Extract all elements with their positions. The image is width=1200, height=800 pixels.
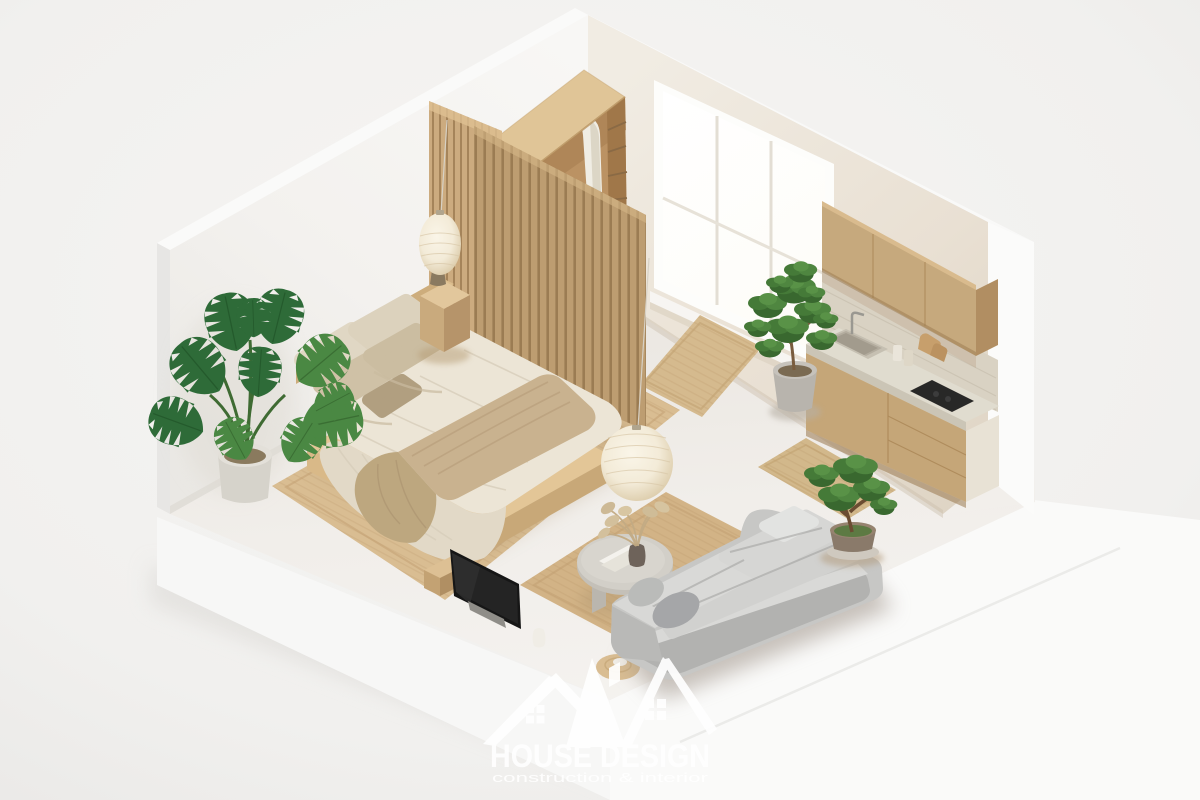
svg-text:HOUSE DESIGN: HOUSE DESIGN [490,738,710,774]
svg-text:construction & interior: construction & interior [492,770,709,785]
